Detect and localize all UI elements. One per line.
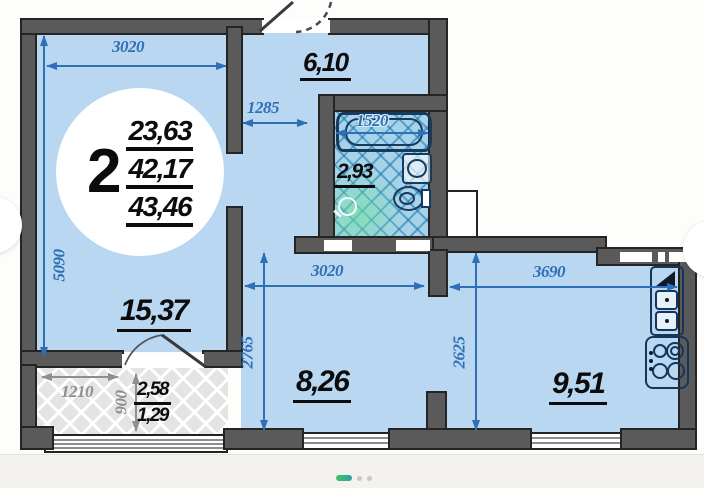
carousel-dots [336, 475, 372, 481]
wall-bedroom-divider-upper [228, 28, 241, 152]
unit-info-badge: 2 23,63 42,17 43,46 [56, 88, 224, 256]
dim-bath-width-arrow [336, 132, 428, 134]
living-window [300, 434, 392, 448]
dim-bath-width-label: 1520 [356, 112, 388, 129]
wall-hall-right [430, 20, 446, 242]
dim-hall-width-arrow [243, 122, 307, 124]
wall-balcony-corner [22, 428, 52, 448]
balcony-total-area: 2,58 [134, 381, 171, 405]
photo-footer-strip [0, 454, 704, 488]
wall-balcony-left [22, 366, 35, 428]
floor-plan-photo: 3020 5090 1285 1520 3020 2765 3690 2625 … [0, 0, 704, 488]
unit-living-area: 23,63 [126, 117, 193, 151]
watermark-magnifier-icon [338, 197, 357, 216]
dim-living-width-label: 3020 [311, 262, 343, 279]
wall-kitchen-divider-top [430, 251, 446, 295]
kitchen-sink-icon [650, 266, 684, 336]
dim-kitchen-width-label: 3690 [533, 263, 565, 280]
dim-living-height-label: 2765 [239, 331, 256, 375]
area-label-bedroom: 15,37 [117, 297, 191, 332]
wall-balcony-top-left [22, 352, 122, 366]
wall-left [22, 20, 35, 365]
toilet-icon [393, 186, 424, 211]
unit-rooms-count: 2 [87, 141, 119, 203]
stove-icon [645, 336, 689, 389]
unit-total-area: 43,46 [126, 193, 193, 227]
dim-balcony-width-label: 1210 [61, 383, 93, 400]
bath-door-opening-1 [324, 240, 352, 251]
area-label-living: 8,26 [293, 368, 351, 403]
dim-living-width-arrow [245, 285, 424, 287]
wall-bath-left [320, 96, 333, 242]
carousel-dot-2[interactable] [357, 476, 362, 481]
wall-bottom-pier [390, 430, 530, 448]
dim-living-height-arrow [263, 253, 265, 430]
carousel-dot-3[interactable] [367, 476, 372, 481]
wall-bottom-right [622, 430, 695, 448]
dim-kitchen-width-arrow [450, 286, 677, 288]
dim-bedroom-height-label: 5090 [51, 244, 68, 288]
unit-areas-stack: 23,63 42,17 43,46 [126, 117, 193, 227]
balcony-door-swing-icon [118, 328, 214, 372]
area-label-kitchen: 9,51 [549, 370, 607, 405]
carousel-dot-active[interactable] [336, 475, 352, 481]
area-label-hall: 6,10 [300, 50, 351, 81]
unit-secondary-area: 42,17 [126, 155, 193, 189]
divider-door-gap [228, 152, 241, 208]
wall-bottom-left [225, 430, 302, 448]
dim-kitchen-height-arrow [475, 253, 477, 430]
dim-bedroom-width-arrow [47, 65, 226, 67]
entrance-door-swing-icon [235, 0, 350, 34]
wall-kitchen-top-a [430, 238, 605, 251]
bathroom-sink-icon [402, 153, 432, 184]
dim-balcony-depth-label: 900 [113, 386, 130, 420]
dim-balcony-width-arrow [42, 376, 118, 378]
dim-hall-width-label: 1285 [247, 99, 279, 116]
balcony-window [46, 436, 226, 451]
balcony-counted-area: 1,29 [134, 407, 171, 428]
vent-opening-b [658, 252, 665, 262]
carousel-prev-button[interactable]: ‹ [0, 197, 22, 253]
dim-bedroom-height-arrow [43, 36, 45, 357]
vent-opening-a [620, 252, 652, 262]
wall-bath-top [320, 96, 446, 110]
area-label-balcony: 2,58 1,29 [134, 381, 171, 428]
dim-kitchen-height-label: 2625 [451, 331, 468, 375]
kitchen-window [528, 434, 624, 448]
area-label-bath: 2,93 [334, 162, 375, 188]
living-floor [241, 238, 446, 434]
bath-door-opening-2 [396, 240, 430, 251]
wall-top-left [22, 20, 262, 33]
vent-shaft [446, 190, 478, 244]
dim-bedroom-width-label: 3020 [112, 38, 144, 55]
